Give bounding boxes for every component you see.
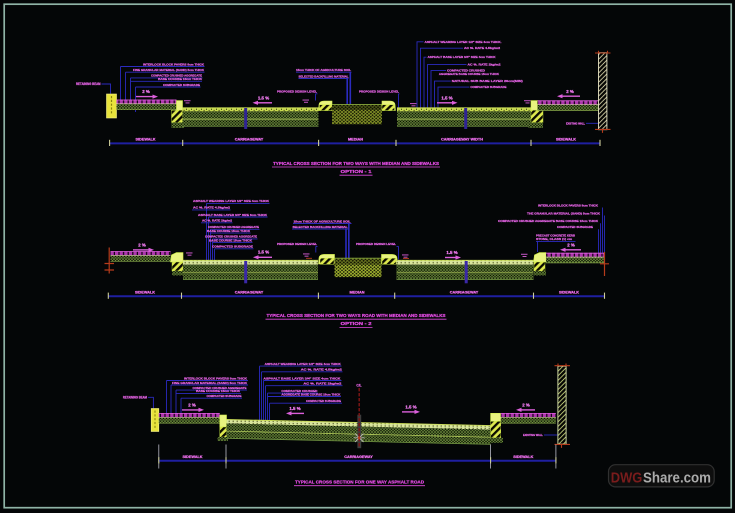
- svg-text:SIDEWALK: SIDEWALK: [135, 290, 155, 294]
- svg-text:TYPICAL CROSS SECTION FOR TWO: TYPICAL CROSS SECTION FOR TWO WAYS WITH …: [273, 161, 439, 166]
- svg-text:SIDEWALK: SIDEWALK: [556, 138, 576, 142]
- svg-text:1.5 %: 1.5 %: [258, 250, 269, 255]
- svg-text:CARRIAGEWAY: CARRIAGEWAY: [235, 138, 264, 142]
- svg-text:RETAINING BEAM: RETAINING BEAM: [123, 395, 147, 399]
- svg-text:BASE COURSE 15cm THICK: BASE COURSE 15cm THICK: [209, 238, 253, 242]
- svg-text:FINE GRANULAR MATERIAL (SAND): FINE GRANULAR MATERIAL (SAND) 5cm THICK: [172, 381, 248, 385]
- svg-text:INTERLOCK BLOCK PAVERS 8cm THI: INTERLOCK BLOCK PAVERS 8cm THICK: [143, 62, 205, 66]
- svg-text:ASPHALT BASE LAYER 3/4" SIZE 4: ASPHALT BASE LAYER 3/4" SIZE 4cm THICK: [428, 55, 497, 59]
- svg-text:COMPACTED SUBGRADE: COMPACTED SUBGRADE: [212, 245, 253, 249]
- svg-text:MEDIAN: MEDIAN: [348, 138, 363, 142]
- svg-text:BASE COURSE 15cm THICK: BASE COURSE 15cm THICK: [196, 389, 241, 393]
- svg-text:TYPICAL CROSS SECTION FOR TWO: TYPICAL CROSS SECTION FOR TWO WAYS ROAD …: [267, 313, 446, 318]
- svg-text:COMPACTED SUBGRADE: COMPACTED SUBGRADE: [207, 394, 242, 398]
- svg-text:INTERLOCK BLOCK PAVERS 8cm THI: INTERLOCK BLOCK PAVERS 8cm THICK: [538, 203, 599, 207]
- svg-text:NATURAL SUB BASE LAYER 20cm(MI: NATURAL SUB BASE LAYER 20cm(MIN): [452, 79, 523, 83]
- svg-text:2 %: 2 %: [522, 403, 530, 408]
- svg-text:2 %: 2 %: [566, 89, 574, 94]
- svg-text:RETAINING BEAM: RETAINING BEAM: [76, 82, 101, 86]
- svg-text:AC %. RATE 2kg/m2: AC %. RATE 2kg/m2: [303, 382, 341, 386]
- svg-text:AC %. RATE 2kg/m2: AC %. RATE 2kg/m2: [202, 219, 232, 223]
- svg-text:AGGREGATE BASE COURSE 15cm THI: AGGREGATE BASE COURSE 15cm THICK: [281, 392, 341, 396]
- svg-text:ASPHALT WEARING LAYER 1/2" SIZ: ASPHALT WEARING LAYER 1/2" SIZE 4cm THIC…: [425, 40, 502, 44]
- svg-text:1.5 %: 1.5 %: [289, 406, 300, 411]
- svg-text:SELECTED BACKFILLING MATERIAL: SELECTED BACKFILLING MATERIAL: [299, 74, 349, 78]
- svg-text:1.5 %: 1.5 %: [446, 250, 457, 255]
- svg-text:PROPOSED DESIGN LEVEL: PROPOSED DESIGN LEVEL: [356, 242, 396, 246]
- svg-text:SIDEWALK: SIDEWALK: [513, 455, 533, 459]
- svg-text:EXISTING WALL: EXISTING WALL: [523, 433, 543, 437]
- svg-text:MEDIAN: MEDIAN: [350, 290, 365, 294]
- svg-text:C/L: C/L: [356, 383, 361, 387]
- svg-text:DWG: DWG: [611, 471, 643, 487]
- svg-text:STONE, CLASS (1) cm: STONE, CLASS (1) cm: [536, 237, 572, 241]
- svg-text:BASE COURSE 15cm THICK: BASE COURSE 15cm THICK: [207, 229, 251, 233]
- svg-text:PROPOSED DESIGN LEVEL: PROPOSED DESIGN LEVEL: [277, 90, 317, 94]
- svg-text:CARRIAGEWAY: CARRIAGEWAY: [344, 455, 373, 459]
- svg-text:ASPHALT WEARING LAYER 1/2" SIZ: ASPHALT WEARING LAYER 1/2" SIZE 4cm THIC…: [193, 199, 270, 203]
- svg-text:2 %: 2 %: [142, 89, 150, 94]
- svg-text:AC %. RATE 4.5kg/m2: AC %. RATE 4.5kg/m2: [301, 368, 342, 372]
- svg-text:CARRIAGEWAY: CARRIAGEWAY: [450, 290, 479, 294]
- svg-text:BASE COURSE 15cm THICK: BASE COURSE 15cm THICK: [158, 77, 203, 81]
- svg-text:1.5 %: 1.5 %: [258, 95, 269, 100]
- svg-text:ASPHALT BASE LAYER 3/4" SIZE 6: ASPHALT BASE LAYER 3/4" SIZE 6cm THICK: [198, 213, 268, 217]
- svg-text:ASPHALT BASE LAYER 3/4" SIZE 4: ASPHALT BASE LAYER 3/4" SIZE 4cm THICK: [263, 376, 341, 380]
- svg-text:Share.com: Share.com: [643, 471, 711, 487]
- svg-text:2 %: 2 %: [138, 243, 146, 248]
- svg-text:PROPOSED DESIGN LEVEL: PROPOSED DESIGN LEVEL: [277, 242, 317, 246]
- svg-text:AC %. RATE 2kg/m2: AC %. RATE 2kg/m2: [468, 63, 501, 67]
- svg-text:CARRIAGEWAY: CARRIAGEWAY: [235, 290, 264, 294]
- svg-text:1.5 %: 1.5 %: [405, 405, 416, 410]
- svg-text:SIDEWALK: SIDEWALK: [559, 290, 579, 294]
- svg-text:EXISTING WALL: EXISTING WALL: [566, 121, 585, 125]
- svg-text:COMPACTED SUBGRADE: COMPACTED SUBGRADE: [470, 85, 506, 89]
- svg-text:SIDEWALK: SIDEWALK: [182, 455, 202, 459]
- svg-text:AC %. RATE 4.5kg/m2: AC %. RATE 4.5kg/m2: [193, 206, 230, 210]
- svg-text:PROPOSED DESIGN LEVEL: PROPOSED DESIGN LEVEL: [359, 90, 399, 94]
- svg-text:OPTION - 2: OPTION - 2: [341, 321, 372, 326]
- svg-text:AGGREGATE BASE COURSE 15cm THI: AGGREGATE BASE COURSE 15cm THICK: [439, 72, 500, 76]
- svg-text:CARRIAGEWAY WIDTH: CARRIAGEWAY WIDTH: [441, 138, 483, 142]
- svg-text:15cm THICK OF AGRICULTURE SOIL: 15cm THICK OF AGRICULTURE SOIL: [294, 219, 351, 223]
- svg-text:SELECTED BACKFILLING MATERIAL: SELECTED BACKFILLING MATERIAL: [293, 225, 348, 229]
- svg-text:ASPHALT WEARING LAYER 1/2" SIZ: ASPHALT WEARING LAYER 1/2" SIZE 4cm THIC…: [265, 362, 342, 366]
- svg-text:THE GRANULAR MATERIAL (SAND) 5: THE GRANULAR MATERIAL (SAND) 5cm THICK: [527, 211, 601, 215]
- svg-text:15cm THICK OF AGRICULTURE SOIL: 15cm THICK OF AGRICULTURE SOIL: [296, 68, 351, 72]
- svg-text:AC %. RATE 4.5kg/m2: AC %. RATE 4.5kg/m2: [464, 46, 500, 50]
- svg-text:TYPICAL CROSS SECTION FOR ONE: TYPICAL CROSS SECTION FOR ONE WAY ASPHAL…: [295, 480, 425, 485]
- svg-text:OPTION - 1: OPTION - 1: [341, 169, 372, 174]
- svg-text:COMPACTED SUBGRADE: COMPACTED SUBGRADE: [306, 399, 341, 403]
- svg-text:COMPACTED CRUSHED AGGREGATE BA: COMPACTED CRUSHED AGGREGATE BASE COURSE …: [498, 219, 599, 223]
- svg-text:1.5 %: 1.5 %: [441, 95, 452, 100]
- svg-text:COMPACTED SUBGRADE: COMPACTED SUBGRADE: [557, 225, 593, 229]
- svg-text:INTERLOCK BLOCK PAVERS 8cm THI: INTERLOCK BLOCK PAVERS 8cm THICK: [184, 376, 248, 380]
- svg-text:SIDEWALK: SIDEWALK: [135, 138, 155, 142]
- svg-text:FINE GRANULAR MATERIAL (SAND): FINE GRANULAR MATERIAL (SAND) 5cm THICK: [133, 68, 205, 72]
- svg-text:2 %: 2 %: [188, 403, 196, 408]
- svg-text:2 %: 2 %: [567, 242, 575, 247]
- svg-text:COMPACTED SUBGRADE: COMPACTED SUBGRADE: [163, 83, 200, 87]
